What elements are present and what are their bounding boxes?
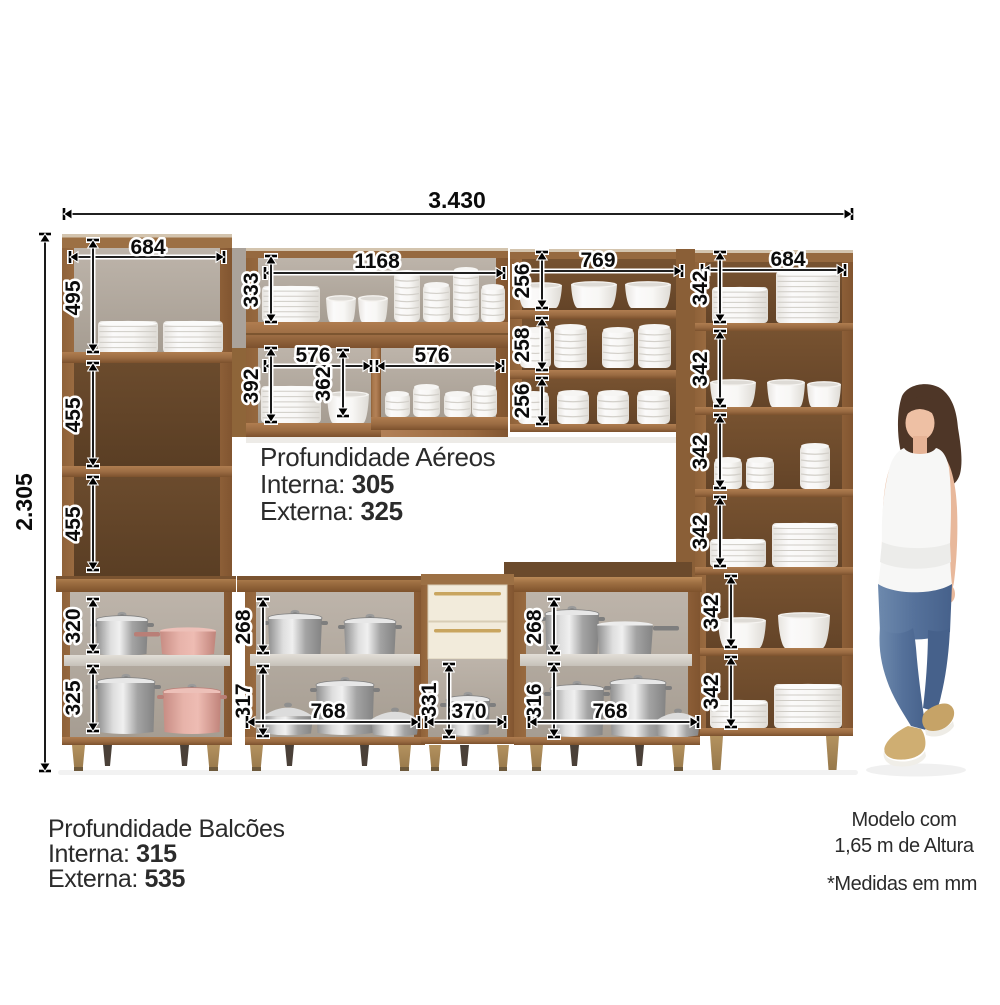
svg-text:1168: 1168 bbox=[354, 250, 400, 273]
svg-text:Interna: 315: Interna: 315 bbox=[48, 840, 177, 868]
svg-text:342: 342 bbox=[689, 270, 712, 305]
svg-text:2.305: 2.305 bbox=[11, 473, 37, 531]
svg-text:342: 342 bbox=[689, 351, 712, 386]
svg-text:268: 268 bbox=[232, 609, 255, 644]
svg-text:576: 576 bbox=[295, 344, 330, 367]
svg-text:769: 769 bbox=[580, 249, 615, 272]
svg-text:320: 320 bbox=[62, 608, 85, 643]
svg-text:258: 258 bbox=[511, 327, 534, 362]
svg-text:331: 331 bbox=[418, 682, 441, 717]
svg-text:342: 342 bbox=[689, 514, 712, 549]
svg-text:256: 256 bbox=[511, 263, 534, 298]
svg-text:Externa: 325: Externa: 325 bbox=[260, 496, 403, 526]
svg-text:392: 392 bbox=[240, 368, 263, 403]
svg-text:455: 455 bbox=[62, 397, 85, 432]
svg-text:684: 684 bbox=[770, 248, 805, 271]
svg-text:268: 268 bbox=[523, 609, 546, 644]
svg-text:1,65 m de Altura: 1,65 m de Altura bbox=[834, 835, 975, 857]
svg-text:495: 495 bbox=[62, 280, 85, 315]
svg-text:Interna: 305: Interna: 305 bbox=[260, 469, 394, 499]
svg-text:333: 333 bbox=[240, 272, 263, 307]
svg-text:576: 576 bbox=[414, 344, 449, 367]
svg-text:Modelo com: Modelo com bbox=[852, 809, 957, 831]
svg-text:768: 768 bbox=[592, 700, 627, 723]
svg-text:362: 362 bbox=[312, 366, 335, 401]
svg-text:370: 370 bbox=[451, 700, 486, 723]
svg-text:256: 256 bbox=[511, 383, 534, 418]
svg-text:316: 316 bbox=[523, 683, 546, 718]
svg-text:Externa: 535: Externa: 535 bbox=[48, 865, 185, 893]
svg-text:Profundidade Aéreos: Profundidade Aéreos bbox=[260, 442, 496, 472]
svg-text:3.430: 3.430 bbox=[428, 187, 486, 213]
svg-text:342: 342 bbox=[700, 674, 723, 709]
svg-text:768: 768 bbox=[310, 700, 345, 723]
svg-text:455: 455 bbox=[62, 506, 85, 541]
svg-text:*Medidas em mm: *Medidas em mm bbox=[827, 873, 977, 895]
svg-text:684: 684 bbox=[130, 236, 165, 259]
svg-text:342: 342 bbox=[689, 434, 712, 469]
svg-text:Profundidade Balcões: Profundidade Balcões bbox=[48, 815, 285, 843]
svg-text:325: 325 bbox=[62, 680, 85, 715]
svg-text:342: 342 bbox=[700, 594, 723, 629]
svg-text:317: 317 bbox=[232, 683, 255, 718]
